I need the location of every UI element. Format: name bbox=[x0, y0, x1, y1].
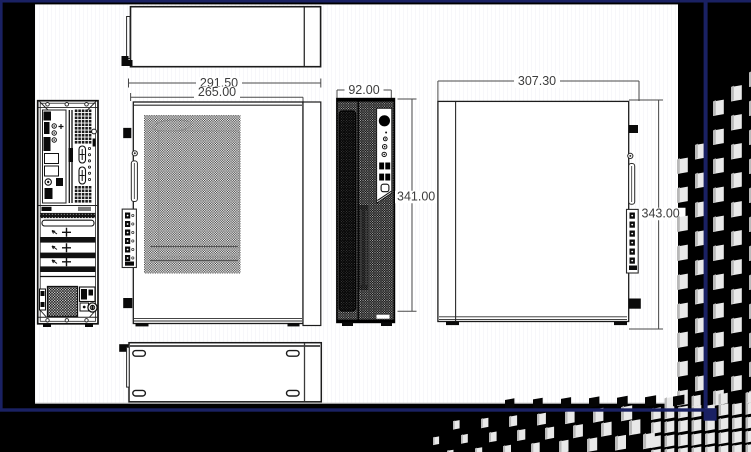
svg-text:265.00: 265.00 bbox=[198, 85, 236, 99]
svg-text:307.30: 307.30 bbox=[518, 74, 556, 88]
svg-text:341.00: 341.00 bbox=[397, 190, 435, 204]
svg-text:343.00: 343.00 bbox=[642, 207, 680, 221]
svg-text:92.00: 92.00 bbox=[348, 83, 379, 97]
